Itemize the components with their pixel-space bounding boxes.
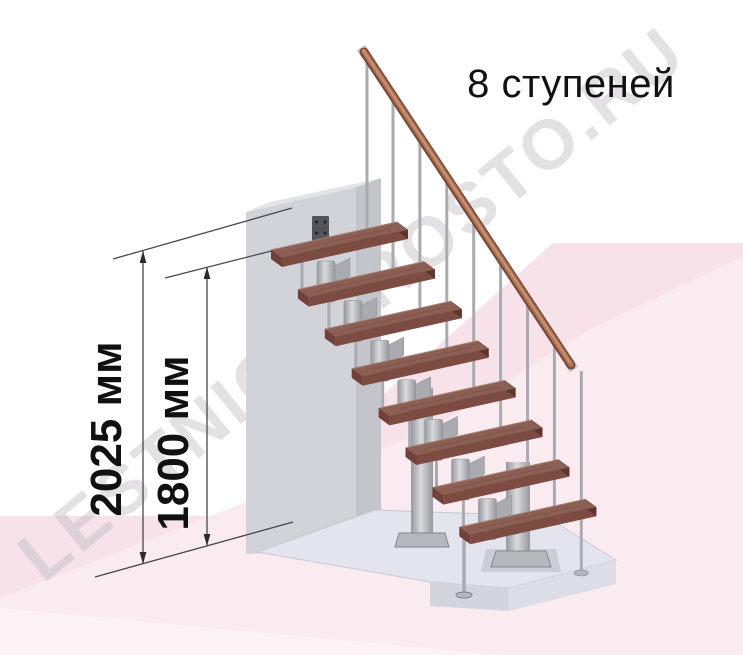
page-title: 8 ступеней	[467, 62, 675, 106]
dimension-label-tread-height: 1800 мм	[149, 355, 198, 530]
baluster-base	[574, 570, 588, 576]
staircase-diagram: LESTNICAPROSTO.RU 2025 мм 1800 мм	[0, 0, 743, 655]
dimension-label-total-height: 2025 мм	[82, 341, 131, 516]
